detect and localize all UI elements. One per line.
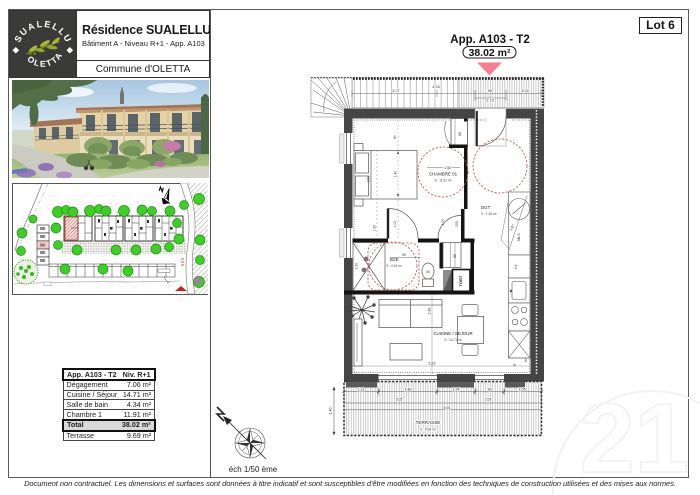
svg-text:60: 60: [426, 270, 430, 274]
svg-text:90: 90: [402, 253, 406, 257]
svg-text:éch 1/50 ème: éch 1/50 ème: [229, 465, 278, 474]
svg-text:215: 215: [396, 398, 402, 402]
svg-text:205: 205: [455, 221, 459, 227]
svg-text:DGT: DGT: [481, 205, 491, 210]
svg-text:215: 215: [485, 398, 491, 402]
svg-text:CUISINE / SEJOUR: CUISINE / SEJOUR: [433, 331, 472, 336]
svg-text:90: 90: [488, 89, 492, 93]
svg-text:App. A103 - T2: App. A103 - T2: [450, 34, 529, 46]
svg-text:60: 60: [524, 358, 528, 362]
svg-text:38.02 m²: 38.02 m²: [468, 47, 511, 59]
svg-text:1.05: 1.05: [519, 388, 526, 392]
svg-text:LV: LV: [514, 264, 518, 269]
svg-text:3.50: 3.50: [367, 176, 371, 183]
svg-text:5.23: 5.23: [429, 362, 436, 366]
svg-text:S : 7.26 m²: S : 7.26 m²: [481, 212, 497, 216]
svg-text:90: 90: [488, 388, 492, 392]
svg-text:1.50: 1.50: [355, 263, 359, 270]
svg-text:3.27: 3.27: [392, 89, 399, 93]
svg-text:S : 14.71 m²: S : 14.71 m²: [444, 338, 461, 342]
svg-text:5.91: 5.91: [444, 406, 451, 410]
svg-text:1.00: 1.00: [393, 221, 397, 228]
svg-text:1.40: 1.40: [329, 408, 333, 415]
svg-text:TGBT: TGBT: [458, 275, 463, 286]
svg-text:1.90: 1.90: [373, 225, 377, 232]
svg-text:1.00: 1.00: [441, 219, 445, 226]
svg-text:CHAMBRE 01: CHAMBRE 01: [429, 172, 458, 177]
svg-text:1.50: 1.50: [444, 166, 451, 170]
svg-text:1.24: 1.24: [453, 388, 460, 392]
svg-text:MLS: MLS: [517, 233, 521, 241]
svg-text:3.04: 3.04: [521, 89, 528, 93]
svg-text:2.15: 2.15: [486, 99, 493, 103]
svg-text:21: 21: [580, 383, 689, 493]
svg-text:1.80: 1.80: [405, 388, 412, 392]
svg-text:S : 4.34 m²: S : 4.34 m²: [386, 264, 402, 268]
svg-text:91: 91: [393, 135, 397, 139]
svg-text:S : 9.69 m²: S : 9.69 m²: [420, 428, 436, 432]
svg-text:TERRASSE: TERRASSE: [416, 420, 441, 425]
svg-text:S : 11.91 m²: S : 11.91 m²: [434, 179, 451, 183]
svg-text:2.42: 2.42: [428, 308, 432, 315]
svg-text:80: 80: [458, 132, 462, 136]
svg-text:4.04: 4.04: [432, 85, 439, 89]
svg-text:SDE: SDE: [389, 257, 398, 262]
svg-text:1.40: 1.40: [394, 171, 398, 178]
svg-text:80: 80: [453, 254, 457, 258]
svg-text:1.12: 1.12: [358, 388, 365, 392]
